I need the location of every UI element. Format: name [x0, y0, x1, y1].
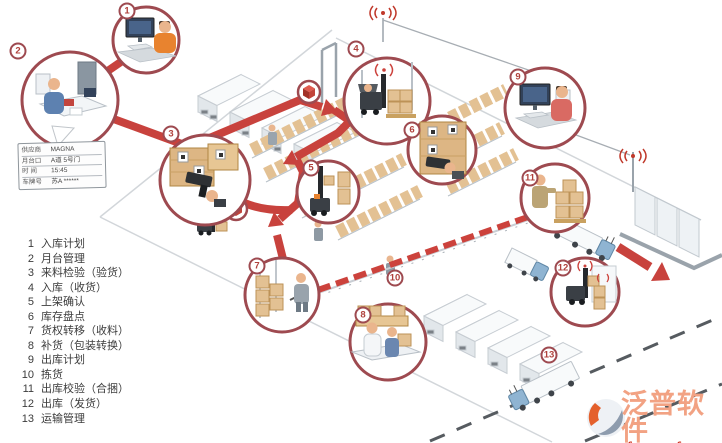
station-badge-6: 6	[404, 122, 421, 139]
station-badge-13: 13	[541, 347, 558, 364]
legend-item: 5上架确认	[14, 295, 129, 310]
legend-item: 2月台管理	[14, 252, 129, 267]
legend-item: 6库存盘点	[14, 310, 129, 325]
supplier-info-card: 供应商MAGNA 月台口A道 5号门 时 间15:45 车牌号苏A ******	[17, 141, 106, 190]
station-badge-1: 1	[119, 3, 136, 20]
card-value: 苏A ******	[49, 175, 102, 186]
station-3-incoming-inspection	[160, 135, 250, 225]
legend-item: 9出库计划	[14, 353, 129, 368]
card-value: 15:45	[49, 165, 102, 176]
card-label: 时 间	[22, 166, 49, 176]
watermark: 泛普软件 www.fanpusoft.com	[586, 391, 722, 443]
station-badge-12: 12	[555, 260, 572, 277]
card-label: 月台口	[22, 156, 49, 166]
warehouse-flow-diagram: 1 2 3 4 5 6 7 8 9 10 11 12 13 供应商MAGNA 月…	[0, 0, 722, 443]
legend-item: 4入库（收货）	[14, 281, 129, 296]
legend-item: 3来料检验（验货）	[14, 266, 129, 281]
perimeter-fence	[633, 152, 701, 257]
legend-item: 7货权转移（收料）	[14, 324, 129, 339]
station-2-dock-office	[22, 52, 118, 148]
legend-item: 13运输管理	[14, 412, 129, 427]
truck-at-dock	[503, 248, 549, 284]
station-badge-7: 7	[249, 258, 266, 275]
card-value: MAGNA	[48, 144, 101, 155]
station-badge-2: 2	[10, 43, 27, 60]
legend-item: 12出库（发货）	[14, 397, 129, 412]
legend-item: 10拣货	[14, 368, 129, 383]
station-badge-9: 9	[510, 69, 527, 86]
legend-item: 8补货（包装转换）	[14, 339, 129, 354]
card-row: 车牌号苏A ******	[22, 175, 102, 187]
card-value: A道 5号门	[49, 154, 102, 165]
process-legend: 1入库计划 2月台管理 3来料检验（验货） 4入库（收货） 5上架确认 6库存盘…	[14, 237, 129, 426]
card-label: 车牌号	[22, 177, 49, 187]
station-badge-4: 4	[348, 41, 365, 58]
dock-door	[322, 43, 336, 104]
fanpu-logo-icon	[586, 398, 626, 438]
station-badge-5: 5	[303, 160, 320, 177]
station-badge-10: 10	[387, 270, 404, 287]
legend-item: 1入库计划	[14, 237, 129, 252]
watermark-brand: 泛普软件	[621, 391, 722, 443]
station-badge-11: 11	[522, 170, 539, 187]
legend-item: 11出库校验（合捆）	[14, 382, 129, 397]
station-badge-8: 8	[355, 307, 372, 324]
station-badge-3: 3	[163, 126, 180, 143]
card-label: 供应商	[21, 145, 48, 155]
